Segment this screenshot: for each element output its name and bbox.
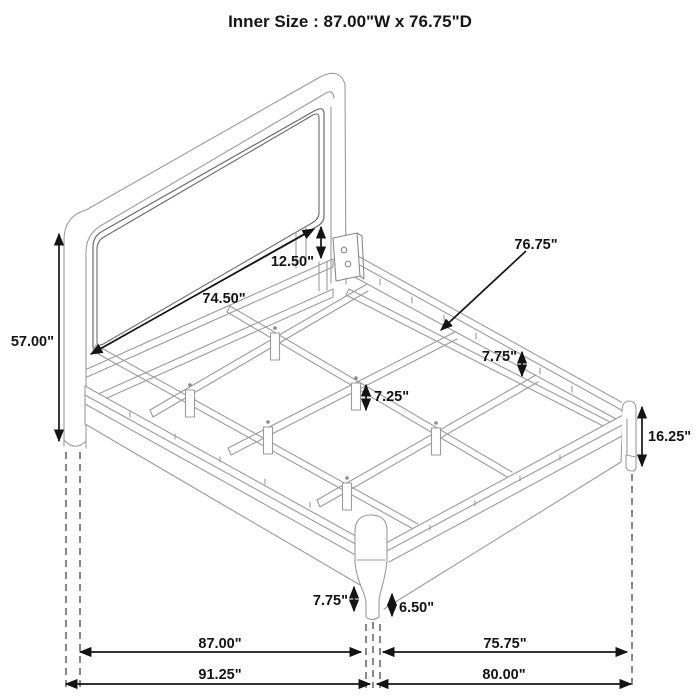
front-leg-outline <box>355 515 387 620</box>
dim-foot-inner-depth: 75.75" <box>383 636 627 652</box>
dim-foot-corner-height: 16.25" <box>642 407 691 466</box>
headboard-left-post-foot <box>64 440 86 446</box>
support-leg <box>432 428 441 455</box>
far-slat-stringer <box>346 289 614 430</box>
dim-label: 12.50" <box>271 254 314 270</box>
diagram-title: Inner Size : 87.00"W x 76.75"D <box>228 12 472 31</box>
dim-label: 57.00" <box>11 334 54 350</box>
bed-frame-diagram: Inner Size : 87.00"W x 76.75"D 74.50" 12… <box>0 0 700 700</box>
foot-rail <box>384 415 624 609</box>
far-rail-screw-slots <box>380 279 572 392</box>
support-leg <box>271 333 280 360</box>
front-corner-leg <box>355 515 387 620</box>
near-rail-face <box>85 386 372 589</box>
near-rail-bottom-edge <box>85 424 367 589</box>
dim-inner-depth: 76.75" <box>441 237 558 330</box>
right-corner-post <box>622 401 636 471</box>
far-rail-top-edge <box>347 250 623 403</box>
diagram-canvas: Inner Size : 87.00"W x 76.75"D 74.50" 12… <box>0 0 700 700</box>
support-leg <box>264 427 273 454</box>
near-rail-seam <box>85 404 368 562</box>
dim-inner-width: 87.00" <box>80 636 361 652</box>
bracket-plate <box>333 233 360 281</box>
dimension-annotations: Inner Size : 87.00"W x 76.75"D 74.50" 12… <box>11 12 691 684</box>
bed-frame-drawing <box>64 73 636 619</box>
support-leg <box>186 390 195 417</box>
slat-2 <box>228 332 457 455</box>
foot-rail-seam <box>389 436 622 562</box>
head-cross-rail-upper <box>87 259 333 377</box>
dim-label: 7.25" <box>374 389 409 405</box>
near-side-rail <box>85 386 372 589</box>
dim-front-leg-height: 7.75" <box>313 587 354 611</box>
slat-1 <box>150 284 368 417</box>
dim-label: 6.50" <box>399 600 434 616</box>
support-leg <box>352 383 361 410</box>
dim-label: 87.00" <box>198 636 241 652</box>
dim-rail-to-stringer: 7.75" <box>482 349 522 376</box>
dim-label: 7.75" <box>482 349 517 365</box>
dim-label: 74.50" <box>202 291 245 307</box>
dim-label: 75.75" <box>483 636 526 652</box>
dim-headboard-height: 57.00" <box>11 234 59 441</box>
headboard-panel-outer-border <box>93 109 324 350</box>
dim-label: 16.25" <box>648 429 691 445</box>
support-leg <box>343 483 352 510</box>
dim-label: 80.00" <box>482 667 525 683</box>
dim-label: 7.75" <box>313 593 348 609</box>
near-rail-top-edge <box>85 386 372 545</box>
dim-label: 91.25" <box>198 667 241 683</box>
dim-overall-depth: 80.00" <box>377 667 631 684</box>
dim-overall-width: 91.25" <box>66 667 370 684</box>
dim-label: 76.75" <box>514 237 557 253</box>
rail-connector-cleat <box>319 261 327 291</box>
